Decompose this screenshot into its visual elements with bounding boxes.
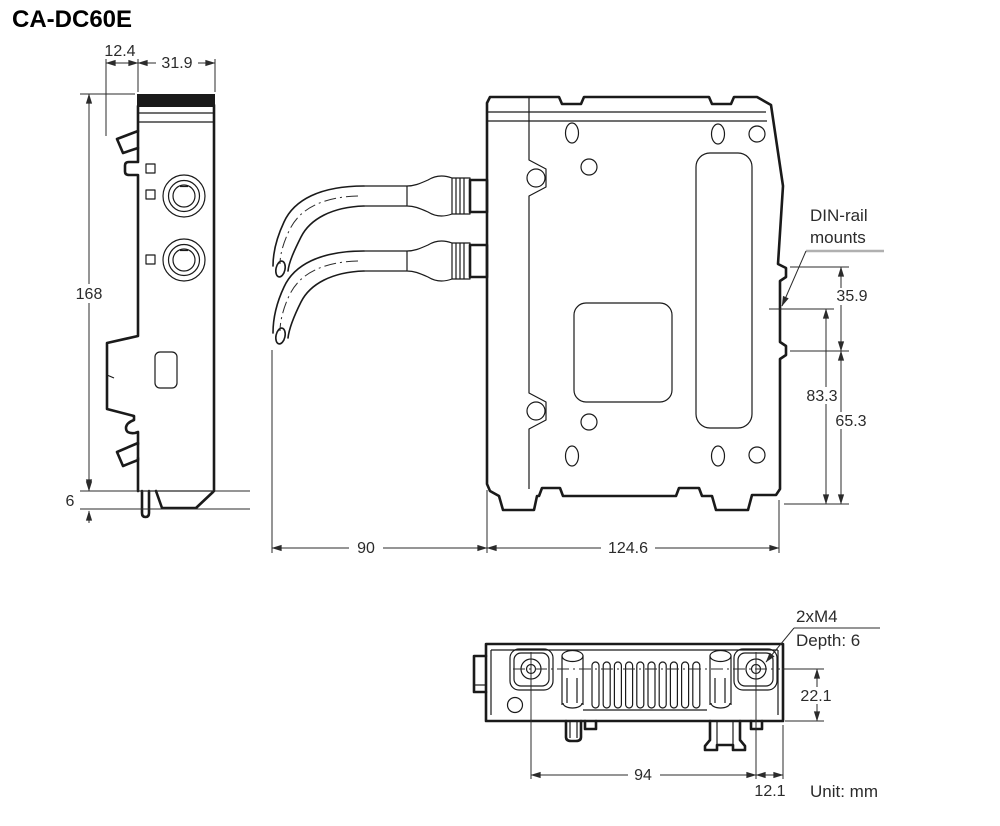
cylinder-bottom (563, 703, 582, 708)
cylinder-walls (562, 656, 583, 705)
right-cylinder (710, 651, 731, 709)
din-clip-inner (717, 721, 733, 745)
cable-centerline (280, 261, 358, 331)
connector-collar (452, 178, 470, 214)
cable-inner-edge (288, 271, 364, 338)
side-top-lines (139, 113, 213, 122)
dim-depth: 22.1 (800, 688, 831, 705)
bottom-peg (566, 721, 581, 741)
extension-lines (531, 652, 783, 779)
round-hole (749, 126, 765, 142)
side-lower-latch (117, 443, 138, 466)
connector-body (470, 180, 487, 212)
din-clip (705, 721, 745, 750)
round-hole (749, 447, 765, 463)
dim-width: 31.9 (161, 55, 192, 72)
connector-collar (452, 243, 470, 279)
screw-depth-label: Depth: 6 (796, 631, 860, 650)
port-outer-ring (163, 175, 205, 217)
extension-lines (272, 350, 779, 553)
round-hole (527, 169, 545, 187)
side-indicator-square (146, 164, 155, 173)
mount-hole (712, 446, 725, 466)
dim-mount-outer: 83.3 (806, 388, 837, 405)
mount-hole (566, 446, 579, 466)
cable-sleeve (364, 251, 407, 271)
connector-boot (407, 241, 452, 281)
side-connector-port-upper (163, 175, 205, 217)
dim-hook-depth: 12.4 (104, 43, 135, 60)
cable-connector-lower (273, 241, 487, 345)
cylinder-pins (715, 678, 725, 703)
side-top-cap (137, 94, 215, 107)
front-side-slot (696, 153, 752, 428)
side-slot (155, 352, 177, 388)
side-bottom-peg (142, 491, 149, 517)
dim-body-width: 124.6 (608, 540, 648, 557)
cable-outer-edge (273, 186, 364, 266)
front-panel-line (529, 98, 546, 489)
cylinder-pins (567, 678, 577, 703)
port-inner-ring (173, 185, 195, 207)
connector-ribs (456, 243, 464, 279)
dim-foot: 6 (66, 493, 75, 510)
dim-screw-pitch: 94 (634, 767, 652, 784)
mount-hole (712, 124, 725, 144)
dim-mount-height: 35.9 (836, 288, 867, 305)
page-title: CA-DC60E (12, 6, 132, 33)
round-hole (527, 402, 545, 420)
round-hole (581, 159, 597, 175)
connector-boot (407, 176, 452, 216)
screw-spec-label: 2xM4 (796, 607, 838, 626)
side-view-dimensions: 12.4 31.9 168 6 (66, 43, 250, 523)
front-top-lines (488, 112, 767, 121)
dim-screw-to-edge: 12.1 (754, 783, 785, 800)
unit-label: Unit: mm (810, 782, 878, 801)
port-outer-ring (163, 239, 205, 281)
port-inner-ring (173, 249, 195, 271)
front-view-dimensions: 90 124.6 35.9 83.3 65.3 DIN-rail mounts (272, 206, 884, 557)
bottom-left-tab (474, 656, 486, 692)
cylinder-top (562, 651, 583, 662)
dim-mount-inner: 65.3 (835, 413, 866, 430)
bottom-peg-inner (570, 721, 577, 738)
dimension-drawing: CA-DC60E 12.4 (0, 0, 1000, 826)
side-indicator-square (146, 255, 155, 264)
din-rail-mounts-label-line2: mounts (810, 228, 866, 247)
bottom-view: 94 12.1 22.1 2xM4 Depth: 6 (474, 607, 880, 800)
mount-hole (566, 123, 579, 143)
cylinder-walls (710, 656, 731, 705)
cable-centerline (280, 196, 358, 264)
front-center-recess (574, 303, 672, 402)
cable-sleeve (364, 186, 407, 206)
side-indicator-square (146, 190, 155, 199)
connector-ribs (456, 178, 464, 214)
vent-slot (682, 662, 689, 708)
dim-cable-length: 90 (357, 540, 375, 557)
cylinder-bottom (711, 703, 730, 708)
left-cylinder (562, 651, 583, 709)
cylinder-top (710, 651, 731, 662)
connector-body (470, 245, 487, 277)
technical-drawing-page: CA-DC60E 12.4 (0, 0, 1000, 826)
dim-height: 168 (76, 286, 103, 303)
cable-outer-edge (273, 251, 364, 333)
bottom-round-hole (508, 698, 523, 713)
cable-connector-upper (273, 176, 487, 278)
side-upper-latch (117, 131, 138, 153)
front-view: 90 124.6 35.9 83.3 65.3 DIN-rail mounts (272, 97, 884, 557)
side-connector-port-lower (163, 239, 205, 281)
round-hole (581, 414, 597, 430)
side-bottom-tray (156, 491, 213, 508)
side-left-edge-din-channel (107, 106, 138, 491)
side-view: 12.4 31.9 168 6 (66, 43, 250, 523)
din-rail-mounts-label-line1: DIN-rail (810, 206, 868, 225)
